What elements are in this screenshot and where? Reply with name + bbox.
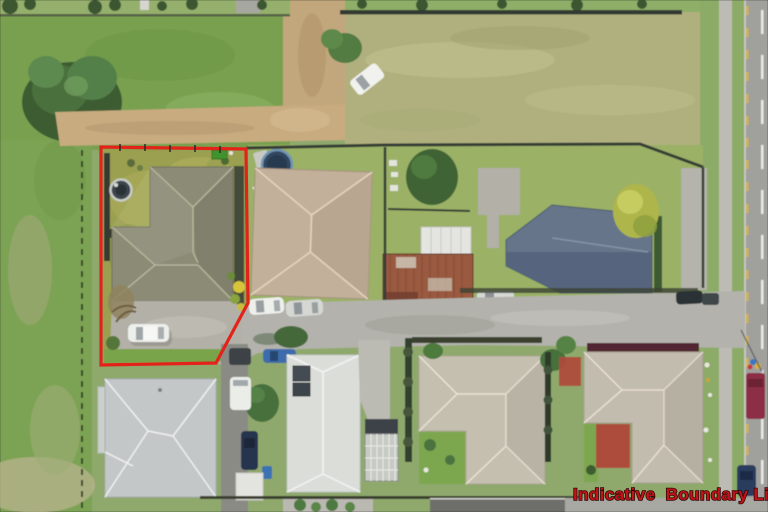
- dark-van: [229, 348, 251, 365]
- yellow-green-tree: [613, 184, 659, 238]
- grey-roof-house: [105, 379, 216, 497]
- white-van: [230, 377, 251, 410]
- neighbour-block-north: [246, 144, 707, 308]
- notch-garden: [419, 432, 465, 484]
- top-fence-left: [0, 14, 290, 17]
- white-shed: [236, 473, 263, 500]
- subject-property: [103, 149, 247, 364]
- parked-white-car: [248, 297, 284, 315]
- glasshouse: [365, 419, 398, 481]
- left-fence: [104, 153, 110, 261]
- aerial-photo: Indicative Boundary Line: [0, 0, 768, 512]
- white-garage: [421, 227, 471, 254]
- tan-roof-house: [251, 168, 372, 299]
- garden-tree: [406, 149, 458, 205]
- parked-silver-car: [285, 299, 323, 318]
- kerb: [744, 0, 746, 512]
- spa-pool: [111, 180, 132, 201]
- dark-blue-parked-car: [241, 431, 258, 470]
- grass-verge-east: [732, 0, 745, 512]
- solar-panel: [293, 383, 310, 396]
- boundary-label: Indicative Boundary Line: [573, 485, 768, 504]
- solar-panel: [293, 366, 310, 381]
- white-roof-house: [287, 355, 360, 492]
- rusty-roof: [383, 254, 473, 305]
- red-paving-small: [559, 357, 581, 386]
- top-fence: [340, 10, 682, 15]
- subject-parked-car: [128, 324, 172, 346]
- field-top-right: [321, 12, 723, 145]
- scene: [0, 0, 768, 512]
- right-road: [700, 0, 768, 512]
- street-top-fence: [460, 288, 698, 293]
- top-edge-properties: [0, 0, 723, 17]
- footpath: [719, 0, 732, 512]
- fence-line: [412, 337, 542, 343]
